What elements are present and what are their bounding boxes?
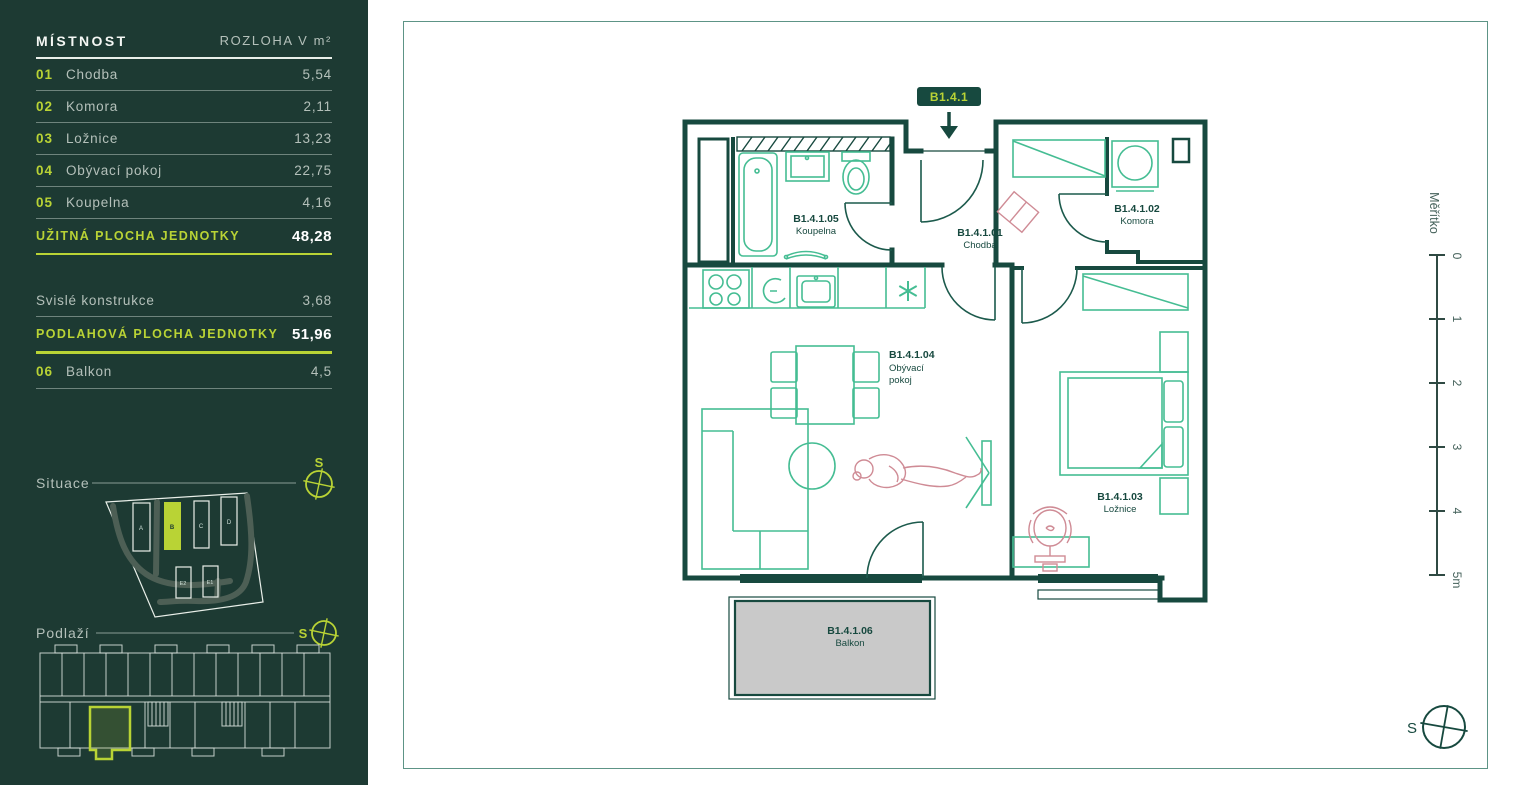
dishwasher-symbol <box>899 281 916 301</box>
floor-area-total-row: PODLAHOVÁ PLOCHA JEDNOTKY 51,96 <box>36 317 332 354</box>
construction-value: 3,68 <box>303 293 332 308</box>
room-name: Komora <box>66 99 118 114</box>
room-label-balkon-id: B1.4.1.06 <box>827 625 873 637</box>
scale-tick: 5m <box>1450 572 1464 589</box>
room-number: 05 <box>36 195 66 210</box>
washbasin <box>786 152 829 181</box>
building-label: A <box>139 526 143 532</box>
building-label: E1 <box>207 580 214 586</box>
table-row: 05 Koupelna 4,16 <box>36 187 332 219</box>
room-label-koupelna-id: B1.4.1.05 <box>793 213 839 225</box>
balcony-door <box>867 522 923 578</box>
tv <box>966 437 991 508</box>
toilet <box>842 152 870 194</box>
room-area: 4,5 <box>311 364 332 379</box>
scale-tick: 0 <box>1450 253 1464 260</box>
window-sill <box>1038 590 1160 599</box>
nightstand <box>1160 332 1188 372</box>
fridge-symbol <box>764 279 785 303</box>
compass-icon: S <box>1407 701 1471 753</box>
bathroom-door <box>845 203 892 250</box>
pink-sketches <box>853 192 1071 571</box>
table-row: 02 Komora 2,11 <box>36 91 332 123</box>
shaft-komora <box>1173 139 1189 162</box>
podlazi-label: Podlaží <box>36 625 90 641</box>
col-room-header: MÍSTNOST <box>36 33 128 49</box>
compass-letter: S <box>315 455 324 470</box>
usable-area-label: UŽITNÁ PLOCHA JEDNOTKY <box>36 229 240 243</box>
living-room-door <box>942 267 995 320</box>
usable-area-total-row: UŽITNÁ PLOCHA JEDNOTKY 48,28 <box>36 219 332 255</box>
bathtub <box>739 153 777 256</box>
partition-walls <box>733 139 1205 268</box>
podlazi-section: Podlaží S <box>0 618 368 785</box>
sidebar: MÍSTNOST ROZLOHA V m² 01 Chodba 5,54 02 … <box>0 0 368 785</box>
stove <box>703 270 749 308</box>
room-label-komora-id: B1.4.1.02 <box>1114 203 1160 215</box>
area-table: MÍSTNOST ROZLOHA V m² 01 Chodba 5,54 02 … <box>36 24 332 389</box>
room-area: 2,11 <box>304 99 332 114</box>
floor-area-value: 51,96 <box>292 326 332 343</box>
scale-tick: 4 <box>1450 508 1464 515</box>
building-label: B <box>170 525 175 531</box>
sofa <box>702 409 808 569</box>
entrance-arrow-icon <box>940 112 958 139</box>
room-label-loznice-name: Ložnice <box>1104 504 1137 515</box>
floor-area-label: PODLAHOVÁ PLOCHA JEDNOTKY <box>36 327 278 341</box>
room-name: Koupelna <box>66 195 129 210</box>
scale-bar: Měřítko 0 1 2 3 4 5m <box>1427 192 1464 588</box>
room-label-chodba-name: Chodba <box>963 240 997 251</box>
compass-icon: S <box>299 618 342 651</box>
coffee-table <box>789 443 835 489</box>
office-chair <box>1029 507 1071 571</box>
room-label-obyvaci-name2: pokoj <box>889 375 912 386</box>
installation-shaft <box>699 139 728 262</box>
building-label: C <box>199 524 204 530</box>
room-name: Chodba <box>66 67 118 82</box>
unit-badge: B1.4.1 <box>917 87 981 106</box>
room-label-balkon-name: Balkon <box>835 638 864 649</box>
bed <box>1060 372 1188 475</box>
site-map: A B C D E2 E1 <box>106 493 263 617</box>
construction-row: Svislé konstrukce 3,68 <box>36 285 332 317</box>
scale-tick: 3 <box>1450 444 1464 451</box>
door-arcs <box>845 160 1107 578</box>
room-name: Ložnice <box>66 131 118 146</box>
usable-area-value: 48,28 <box>292 228 332 245</box>
room-name: Obývací pokoj <box>66 163 162 178</box>
room-label-obyvaci-name1: Obývací <box>889 363 924 374</box>
building-label: E2 <box>180 581 187 587</box>
hall-wardrobe <box>1013 140 1105 177</box>
room-number: 01 <box>36 67 66 82</box>
windows <box>740 574 1158 583</box>
hatched-shaft <box>737 137 890 151</box>
room-area: 13,23 <box>294 131 332 146</box>
plan-sheet-border <box>404 22 1488 769</box>
entrance-door <box>921 160 983 222</box>
room-area: 5,54 <box>303 67 332 82</box>
col-area-header: ROZLOHA V m² <box>220 33 332 48</box>
table-row: 01 Chodba 5,54 <box>36 59 332 91</box>
komora-door <box>1059 194 1107 242</box>
kitchen-counter <box>689 267 925 308</box>
balcony-area <box>729 597 935 699</box>
dining-table <box>771 346 879 424</box>
room-label-loznice-id: B1.4.1.03 <box>1097 491 1143 503</box>
room-label-chodba-id: B1.4.1.01 <box>957 227 1003 239</box>
furniture <box>689 140 1188 569</box>
floor-overview-plan <box>40 645 330 756</box>
walls <box>685 122 1205 600</box>
floorplan-sheet: MÍSTNOST ROZLOHA V m² 01 Chodba 5,54 02 … <box>0 0 1520 785</box>
doormat <box>997 192 1038 232</box>
scale-tick: 2 <box>1450 380 1464 387</box>
scale-label: Měřítko <box>1427 192 1441 234</box>
desk <box>1013 537 1089 567</box>
bedroom-wardrobe <box>1083 274 1188 310</box>
scale-tick: 1 <box>1450 316 1464 323</box>
room-number: 03 <box>36 131 66 146</box>
room-name: Balkon <box>66 364 112 379</box>
reclining-person-figure <box>853 455 981 488</box>
room-label-obyvaci-id: B1.4.1.04 <box>889 349 935 361</box>
nightstand <box>1160 478 1188 514</box>
building-label: D <box>227 520 232 526</box>
table-row: 03 Ložnice 13,23 <box>36 123 332 155</box>
table-row: 04 Obývací pokoj 22,75 <box>36 155 332 187</box>
bedroom-door <box>1022 268 1077 323</box>
room-labels: B1.4.1.05 Koupelna B1.4.1.01 Chodba B1.4… <box>793 203 1160 649</box>
room-number: 04 <box>36 163 66 178</box>
washing-machine <box>1112 141 1158 191</box>
situace-label: Situace <box>36 475 90 491</box>
table-header: MÍSTNOST ROZLOHA V m² <box>36 24 332 59</box>
room-area: 22,75 <box>294 163 332 178</box>
unit-badge-label: B1.4.1 <box>930 90 968 104</box>
towel-rail <box>786 252 826 260</box>
compass-letter: S <box>299 626 308 641</box>
room-number: 06 <box>36 364 66 379</box>
room-label-komora-name: Komora <box>1120 216 1154 227</box>
room-label-koupelna-name: Koupelna <box>796 226 837 237</box>
kitchen-sink <box>797 276 835 307</box>
construction-label: Svislé konstrukce <box>36 293 155 308</box>
balcony-row: 06 Balkon 4,5 <box>36 354 332 389</box>
room-area: 4,16 <box>303 195 332 210</box>
compass-letter: S <box>1407 720 1417 737</box>
room-number: 02 <box>36 99 66 114</box>
highlighted-unit-outline <box>90 707 130 759</box>
compass-icon: S <box>300 455 338 503</box>
